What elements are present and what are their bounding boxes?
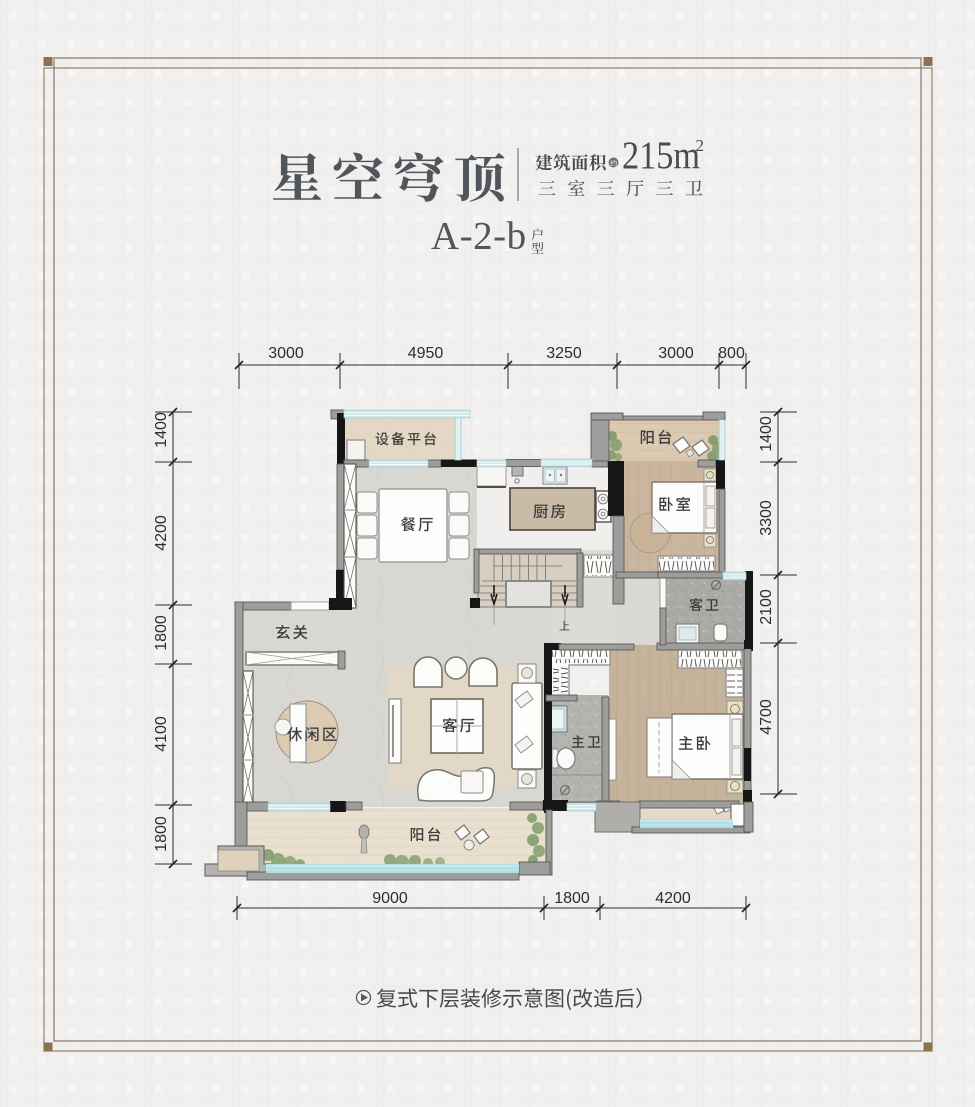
svg-text:9000: 9000 — [372, 890, 408, 907]
svg-text:3000: 3000 — [658, 345, 694, 362]
svg-text:1800: 1800 — [153, 615, 170, 651]
svg-text:3300: 3300 — [758, 500, 775, 536]
svg-text:1400: 1400 — [153, 412, 170, 448]
svg-text:2100: 2100 — [758, 589, 775, 625]
svg-text:3000: 3000 — [268, 345, 304, 362]
svg-text:800: 800 — [718, 345, 745, 362]
svg-text:1800: 1800 — [153, 816, 170, 852]
svg-text:215m: 215m — [622, 134, 700, 177]
svg-text:4200: 4200 — [153, 515, 170, 551]
svg-text:1400: 1400 — [758, 416, 775, 452]
svg-text:A-2-b: A-2-b — [431, 215, 527, 258]
svg-text:4700: 4700 — [758, 699, 775, 735]
svg-text:4950: 4950 — [408, 345, 444, 362]
svg-text:4200: 4200 — [655, 890, 691, 907]
svg-text:1800: 1800 — [554, 890, 590, 907]
svg-text:2: 2 — [696, 136, 705, 155]
svg-text:4100: 4100 — [153, 716, 170, 752]
svg-text:3250: 3250 — [546, 345, 582, 362]
